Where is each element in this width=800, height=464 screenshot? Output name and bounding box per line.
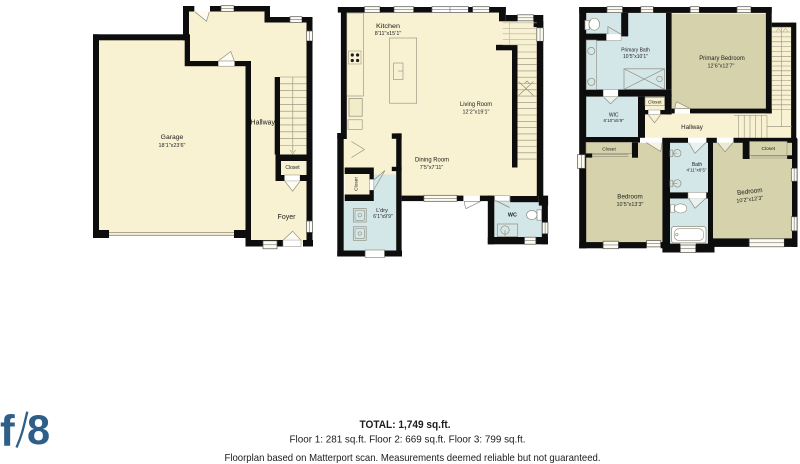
svg-text:TOTAL: 1,749 sq.ft.: TOTAL: 1,749 sq.ft. bbox=[360, 419, 451, 431]
svg-text:Floorplan based on Matterport: Floorplan based on Matterport scan. Meas… bbox=[225, 453, 601, 464]
svg-text:6’1"x9’9": 6’1"x9’9" bbox=[373, 214, 393, 220]
svg-text:8’11"x15’1": 8’11"x15’1" bbox=[375, 31, 402, 37]
svg-text:12’2"x19’1": 12’2"x19’1" bbox=[463, 110, 490, 116]
svg-text:Closet: Closet bbox=[354, 177, 360, 191]
svg-text:Primary Bedroom: Primary Bedroom bbox=[699, 55, 745, 62]
svg-text:Hallway: Hallway bbox=[681, 124, 704, 131]
svg-text:8: 8 bbox=[27, 406, 50, 453]
svg-text:Foyer: Foyer bbox=[278, 214, 297, 221]
svg-text:WC: WC bbox=[508, 213, 517, 219]
svg-text:Primary Bath: Primary Bath bbox=[621, 48, 650, 54]
svg-text:4’11"x6’5": 4’11"x6’5" bbox=[686, 167, 706, 172]
svg-text:Closet: Closet bbox=[648, 99, 662, 105]
svg-text:f: f bbox=[0, 407, 15, 456]
svg-text:Floor 1: 281 sq.ft. Floor 2: 6: Floor 1: 281 sq.ft. Floor 2: 669 sq.ft. … bbox=[290, 435, 526, 446]
svg-text:12’6"x12’7": 12’6"x12’7" bbox=[708, 64, 735, 70]
svg-text:Hallway: Hallway bbox=[251, 119, 276, 126]
svg-text:Bedroom: Bedroom bbox=[617, 194, 643, 201]
svg-text:7’5"x7’11": 7’5"x7’11" bbox=[420, 165, 444, 171]
svg-text:10’5"x13’3": 10’5"x13’3" bbox=[617, 202, 644, 208]
svg-text:Closet: Closet bbox=[761, 146, 775, 152]
svg-text:Living Room: Living Room bbox=[460, 101, 492, 108]
svg-text:Dining Room: Dining Room bbox=[415, 157, 449, 164]
svg-text:Kitchen: Kitchen bbox=[376, 23, 400, 30]
svg-text:6’10"x5’9": 6’10"x5’9" bbox=[604, 118, 625, 123]
svg-text:Closet: Closet bbox=[602, 146, 616, 152]
svg-text:10’5"x10’1": 10’5"x10’1" bbox=[623, 54, 648, 60]
svg-text:Closet: Closet bbox=[285, 165, 300, 171]
svg-text:Garage: Garage bbox=[161, 134, 184, 141]
svg-text:18’1"x23’6": 18’1"x23’6" bbox=[159, 143, 186, 149]
